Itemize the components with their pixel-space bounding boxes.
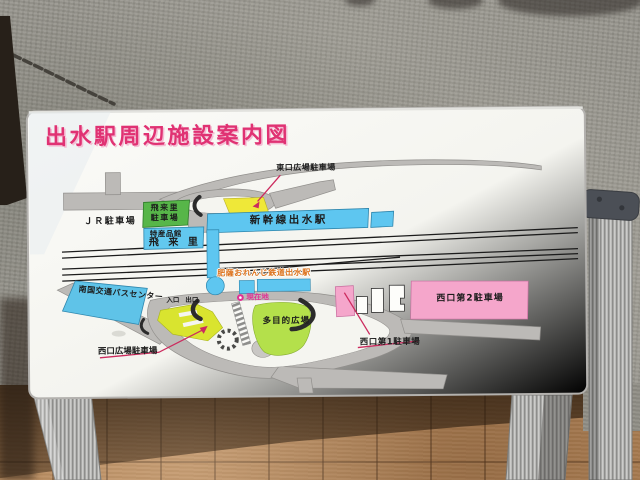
platform-box bbox=[239, 280, 254, 293]
station-passage bbox=[207, 230, 219, 278]
west-no2-parking-box bbox=[410, 280, 528, 320]
plaza-star-monument bbox=[219, 331, 237, 349]
right-support-post bbox=[506, 395, 572, 480]
passage-end bbox=[206, 277, 224, 295]
west-no1-parking-box bbox=[335, 286, 354, 317]
pole-cap-bracket bbox=[580, 189, 640, 221]
east-plaza-parking-area bbox=[224, 197, 269, 213]
station-annex-box bbox=[371, 211, 394, 227]
photo-of-station-guide-sign: 出水駅周辺施設案内図 東口広場駐車場 ＪＲ駐車場 飛来里 駐車場 特産品館 飛 … bbox=[0, 0, 640, 480]
hirari-parking-box bbox=[143, 200, 190, 227]
left-support-post bbox=[33, 393, 101, 480]
sign-graphics bbox=[0, 0, 640, 480]
platform-box bbox=[257, 279, 310, 291]
tokusan-hall-box bbox=[144, 227, 204, 250]
fence-post bbox=[0, 16, 27, 205]
chain-barrier bbox=[13, 55, 114, 104]
